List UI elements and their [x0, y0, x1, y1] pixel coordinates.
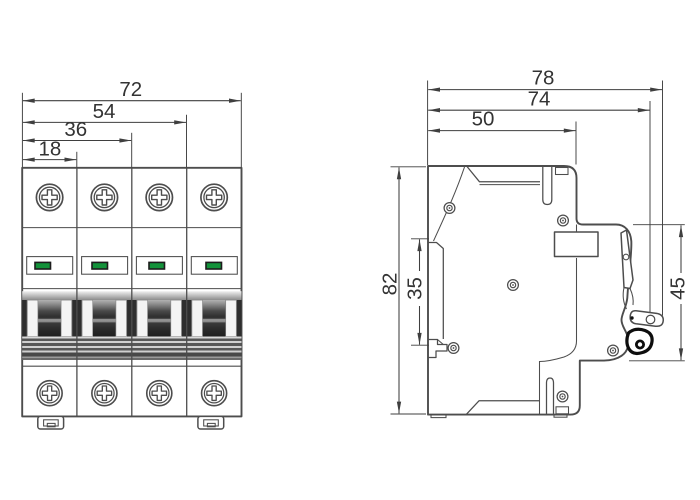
screw-icon — [37, 381, 62, 406]
bottom-foot-left — [431, 415, 446, 418]
dim-label-50: 50 — [472, 108, 495, 131]
toggle-handle-1 — [27, 300, 72, 337]
case-screw-icon — [444, 203, 455, 214]
din-clip-left — [38, 416, 64, 429]
screw-icon — [147, 381, 172, 406]
toggle-handle-4 — [192, 300, 237, 337]
case-screw-icon — [448, 343, 459, 354]
side-body — [428, 166, 631, 415]
screw-icon — [36, 184, 62, 210]
side-view — [428, 166, 663, 418]
status-indicator-green-2 — [92, 262, 108, 269]
busbar-cover-block — [555, 232, 599, 257]
drawing-svg: 72 54 36 18 — [0, 0, 700, 500]
screw-icon — [202, 381, 227, 406]
dim-label-35: 35 — [404, 277, 427, 300]
screw-icon — [146, 184, 172, 210]
screw-icon — [201, 184, 227, 210]
toggle-handle-3 — [137, 300, 182, 337]
case-screw-icon — [557, 391, 568, 402]
bottom-foot-right — [554, 415, 567, 418]
dim-label-78: 78 — [532, 67, 555, 90]
dim-label-45: 45 — [667, 277, 690, 300]
case-screw-icon — [558, 215, 569, 226]
dim-label-74: 74 — [528, 87, 551, 110]
case-screw-icon — [508, 280, 519, 291]
toggle-knob-hole — [636, 341, 643, 348]
front-dimensions: 72 54 36 18 — [22, 78, 241, 167]
status-indicator-green-1 — [35, 262, 51, 269]
status-indicator-green-4 — [206, 262, 222, 269]
dim-label-72: 72 — [119, 78, 142, 101]
dim-label-36: 36 — [64, 118, 87, 141]
pivot-dot — [630, 316, 633, 319]
mcb-dimension-drawing: 72 54 36 18 — [0, 0, 700, 500]
screw-icon — [92, 381, 117, 406]
din-clip-right — [198, 416, 224, 429]
front-view — [22, 168, 241, 429]
dim-label-54: 54 — [93, 100, 116, 123]
toggle-handle-2 — [82, 300, 127, 337]
screw-icon — [91, 184, 117, 210]
dim-label-82: 82 — [379, 273, 402, 296]
status-indicator-green-3 — [149, 262, 165, 269]
case-screw-icon — [608, 345, 619, 356]
dim-label-18: 18 — [38, 137, 61, 160]
